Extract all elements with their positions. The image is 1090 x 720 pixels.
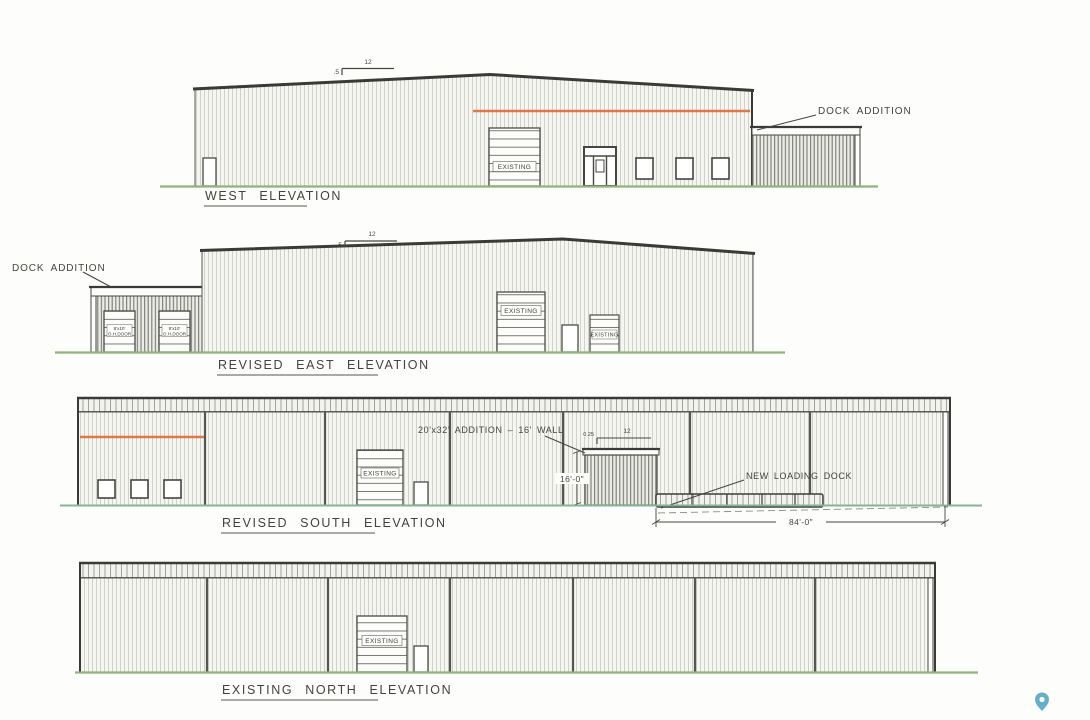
south-elevation: EXISTING 12 0.25 16'-0" 20'x32' ADDITION… bbox=[60, 398, 982, 533]
east-wall bbox=[202, 239, 753, 352]
south-overall-dim: 84'-0" bbox=[652, 506, 949, 527]
east-small-overhead-door: EXISTING bbox=[590, 315, 619, 352]
south-window-1 bbox=[98, 480, 115, 498]
south-overall-dim-label: 84'-0" bbox=[789, 517, 813, 527]
east-dock-oh-door-2-size: 8'x10' bbox=[169, 326, 181, 331]
west-entrance-door-lite bbox=[596, 160, 604, 172]
south-addition bbox=[582, 449, 660, 505]
east-dock-roof-band bbox=[91, 287, 202, 296]
south-slope-rise-label: 0.25 bbox=[583, 432, 594, 438]
west-overhead-door-panel bbox=[489, 128, 540, 186]
west-slope-run-label: 12 bbox=[364, 59, 372, 66]
west-slope-rise-label: .5 bbox=[334, 69, 340, 76]
east-dock-oh-door-1-type: O.H.DOOR bbox=[108, 332, 132, 337]
south-addition-wall bbox=[585, 455, 657, 505]
west-dock-roof-band bbox=[752, 127, 860, 135]
west-overhead-door: EXISTING bbox=[489, 128, 540, 186]
south-elevation-title: REVISED SOUTH ELEVATION bbox=[222, 516, 447, 530]
east-large-door-panel bbox=[497, 292, 545, 352]
south-window-2 bbox=[131, 480, 148, 498]
south-loading-dock-label: NEW LOADING DOCK bbox=[746, 471, 852, 481]
south-overhead-door: EXISTING bbox=[357, 450, 403, 505]
elevation-drawing-sheet: 12 .5 EXISTING DOCK AD bbox=[0, 0, 1090, 720]
north-parapet-band bbox=[80, 563, 935, 578]
east-slope-rise-label: .5 bbox=[337, 242, 343, 249]
west-dock-corner-post bbox=[855, 135, 860, 186]
south-wall-height-label: 16'-0" bbox=[560, 474, 584, 484]
east-dock-oh-door-1: 8'x10' O.H.DOOR bbox=[104, 311, 135, 352]
east-dock-addition-label: DOCK ADDITION bbox=[12, 263, 106, 274]
north-elevation: EXISTING EXISTING NORTH ELEVATION bbox=[75, 563, 978, 700]
west-entrance-door bbox=[584, 147, 616, 186]
north-man-door bbox=[414, 646, 428, 672]
west-dock-wall bbox=[752, 135, 855, 186]
south-overhead-door-label: EXISTING bbox=[363, 471, 397, 478]
west-window-3 bbox=[712, 158, 729, 179]
north-overhead-door-label: EXISTING bbox=[365, 638, 399, 645]
east-elevation-title: REVISED EAST ELEVATION bbox=[218, 358, 430, 372]
east-dock-oh-door-2: 8'x10' O.H.DOOR bbox=[159, 311, 190, 352]
east-dock-corner-post bbox=[91, 296, 96, 352]
map-pin-hole bbox=[1039, 697, 1044, 702]
drawing-canvas: 12 .5 EXISTING DOCK AD bbox=[0, 0, 1090, 720]
north-elevation-title: EXISTING NORTH ELEVATION bbox=[222, 683, 452, 697]
north-overhead-door: EXISTING bbox=[357, 616, 407, 672]
map-pin-icon bbox=[1035, 693, 1049, 712]
north-corner-post-right bbox=[928, 578, 933, 672]
south-addition-note: 20'x32' ADDITION – 16' WALL bbox=[418, 425, 564, 435]
west-wall bbox=[195, 74, 752, 186]
east-dock-leader bbox=[83, 272, 113, 288]
west-window-1 bbox=[636, 158, 653, 179]
north-wall bbox=[80, 578, 935, 672]
west-elevation-title: WEST ELEVATION bbox=[205, 189, 342, 203]
east-large-overhead-door: EXISTING bbox=[497, 292, 545, 352]
east-dock-oh-door-1-size: 8'x10' bbox=[114, 326, 126, 331]
west-elevation: 12 .5 EXISTING DOCK AD bbox=[160, 59, 912, 206]
south-slope-run-label: 12 bbox=[623, 428, 631, 435]
south-parapet-band bbox=[78, 398, 950, 412]
east-slope-run-label: 12 bbox=[368, 231, 376, 238]
west-overhead-door-label: EXISTING bbox=[498, 164, 532, 171]
south-man-door bbox=[414, 482, 428, 505]
east-dock-addition: 8'x10' O.H.DOOR 8'x10' O.H.DOOR bbox=[89, 287, 203, 352]
west-window-2 bbox=[676, 158, 693, 179]
east-large-door-label: EXISTING bbox=[504, 308, 538, 315]
west-man-door bbox=[203, 158, 216, 186]
east-small-door-label: EXISTING bbox=[590, 333, 618, 339]
west-slope-marker: 12 .5 bbox=[334, 59, 394, 76]
east-man-door bbox=[562, 325, 578, 352]
east-dock-oh-door-2-type: O.H.DOOR bbox=[163, 332, 187, 337]
east-elevation: DOCK ADDITION 8'x10' O.H.DOOR 8'x10' O.H… bbox=[12, 231, 785, 375]
south-corner-post-right bbox=[943, 412, 948, 505]
south-grade-dashed-line bbox=[658, 507, 948, 513]
west-dock-addition bbox=[750, 127, 862, 186]
south-window-3 bbox=[164, 480, 181, 498]
west-dock-addition-label: DOCK ADDITION bbox=[818, 106, 912, 117]
